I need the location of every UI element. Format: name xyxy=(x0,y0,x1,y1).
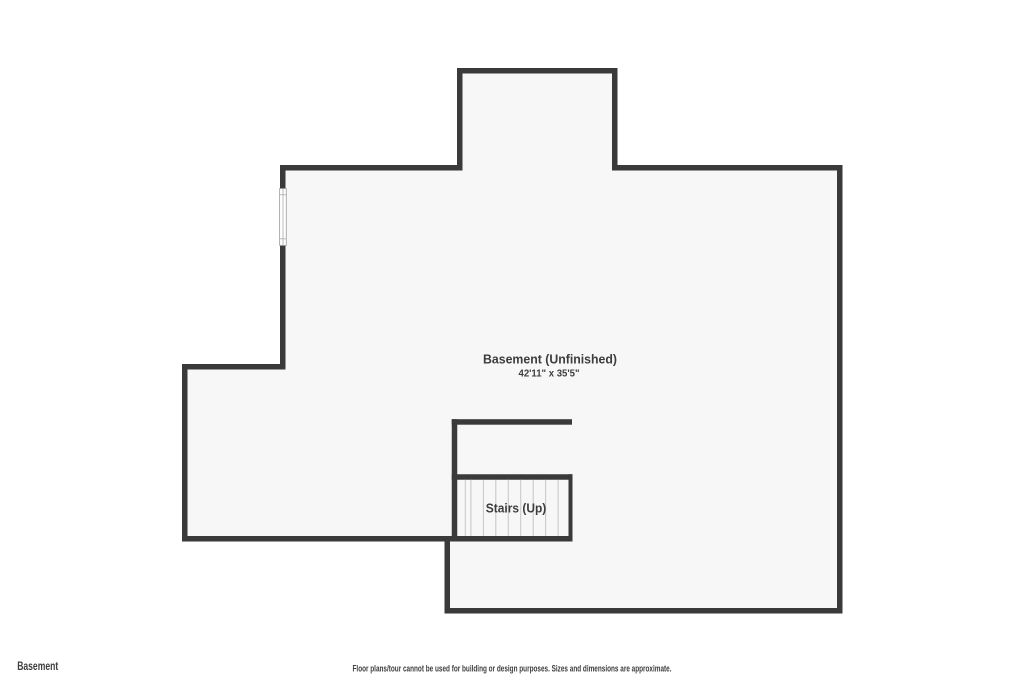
svg-text:42'11" x 35'5": 42'11" x 35'5" xyxy=(519,368,580,379)
svg-text:Basement: Basement xyxy=(17,659,58,673)
svg-text:Basement (Unfinished): Basement (Unfinished) xyxy=(483,352,617,367)
svg-text:Stairs (Up): Stairs (Up) xyxy=(486,500,547,515)
svg-text:Floor plans/tour cannot be use: Floor plans/tour cannot be used for buil… xyxy=(353,663,672,674)
